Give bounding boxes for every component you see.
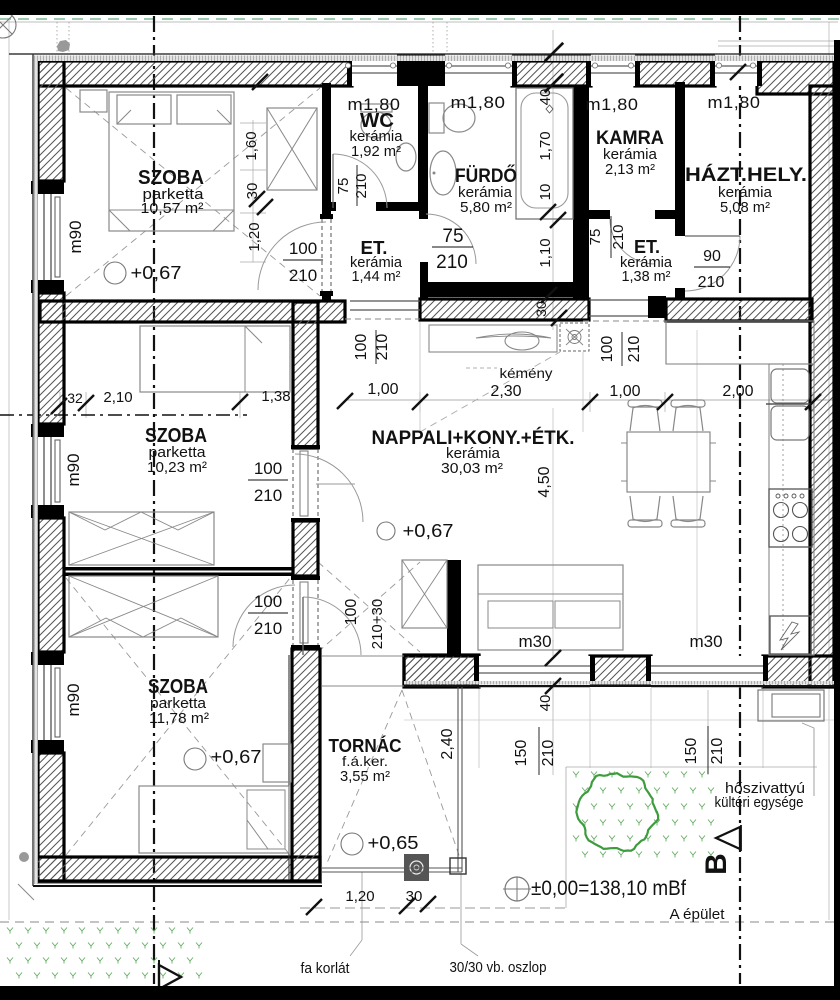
svg-text:150: 150: [683, 738, 700, 765]
svg-text:100: 100: [254, 459, 282, 478]
svg-text:+0,65: +0,65: [368, 833, 419, 853]
svg-text:210: 210: [436, 252, 468, 273]
svg-text:2,30: 2,30: [490, 383, 521, 400]
svg-text:3,55 m²: 3,55 m²: [340, 769, 390, 785]
svg-text:KAMRA: KAMRA: [596, 128, 664, 149]
svg-text:210: 210: [289, 266, 317, 285]
svg-text:30/30 vb. oszlop: 30/30 vb. oszlop: [450, 960, 547, 976]
svg-text:210: 210: [374, 334, 391, 361]
svg-text:210: 210: [540, 740, 557, 767]
svg-text:B: B: [700, 853, 733, 875]
svg-text:kerámia: kerámia: [458, 185, 513, 201]
svg-text:10,57 m²: 10,57 m²: [141, 200, 204, 217]
svg-text:210+30: 210+30: [369, 599, 386, 649]
svg-text:m1,80: m1,80: [708, 93, 761, 112]
svg-text:210: 210: [709, 738, 726, 765]
svg-text:75: 75: [587, 229, 604, 246]
svg-text:A épület: A épület: [670, 907, 725, 923]
svg-text:75: 75: [442, 226, 463, 247]
svg-text:m30: m30: [518, 632, 551, 651]
svg-text:FÜRDŐ: FÜRDŐ: [455, 165, 517, 187]
svg-text:1,00: 1,00: [367, 381, 398, 398]
svg-text:m90: m90: [66, 220, 85, 253]
svg-text:30,03 m²: 30,03 m²: [441, 461, 503, 477]
svg-text:210: 210: [626, 336, 643, 363]
svg-text:2,13 m²: 2,13 m²: [605, 162, 655, 178]
svg-text:+0,67: +0,67: [131, 263, 182, 283]
svg-text:±0,00=138,10 mBf: ±0,00=138,10 mBf: [531, 877, 686, 900]
svg-text:210: 210: [610, 224, 627, 249]
svg-text:1,10: 1,10: [537, 238, 554, 267]
svg-text:kerámia: kerámia: [446, 446, 501, 462]
svg-text:30: 30: [406, 888, 423, 905]
svg-text:210: 210: [254, 486, 282, 505]
svg-text:100: 100: [599, 336, 616, 363]
svg-text:2,00: 2,00: [722, 383, 753, 400]
svg-text:40: 40: [537, 695, 554, 712]
svg-text:75: 75: [335, 178, 352, 195]
svg-text:5,80 m²: 5,80 m²: [460, 200, 512, 216]
svg-text:m30: m30: [689, 632, 722, 651]
svg-text:40: 40: [537, 89, 554, 106]
svg-text:m1,80: m1,80: [586, 95, 639, 114]
svg-text:5,08 m²: 5,08 m²: [720, 200, 770, 216]
svg-text:32: 32: [67, 390, 83, 406]
svg-text:kerámia: kerámia: [718, 185, 773, 201]
svg-text:fa korlát: fa korlát: [301, 961, 350, 977]
svg-text:f.á.ker.: f.á.ker.: [342, 753, 388, 769]
svg-text:30: 30: [244, 183, 261, 200]
svg-text:1,38 m²: 1,38 m²: [622, 269, 671, 285]
svg-text:2,10: 2,10: [103, 389, 132, 406]
svg-text:m1,80: m1,80: [451, 93, 506, 112]
svg-text:+0,67: +0,67: [403, 521, 454, 541]
svg-text:1,20: 1,20: [246, 222, 263, 251]
svg-text:1,38: 1,38: [261, 388, 290, 405]
svg-text:1,70: 1,70: [537, 131, 554, 160]
svg-text:m90: m90: [64, 683, 83, 716]
svg-text:90: 90: [703, 248, 721, 265]
svg-text:1,92 m²: 1,92 m²: [351, 144, 401, 160]
svg-text:10: 10: [537, 184, 554, 201]
svg-text:kültéri egysége: kültéri egysége: [715, 794, 804, 811]
svg-text:30: 30: [533, 301, 549, 317]
svg-text:10,23 m²: 10,23 m²: [147, 459, 207, 476]
svg-text:210: 210: [353, 173, 370, 198]
svg-text:100: 100: [343, 599, 360, 626]
svg-text:100: 100: [289, 239, 317, 258]
svg-text:HÁZT.HELY.: HÁZT.HELY.: [685, 164, 807, 186]
svg-text:100: 100: [353, 334, 370, 361]
svg-text:210: 210: [698, 274, 725, 291]
svg-text:m90: m90: [64, 453, 83, 486]
svg-text:100: 100: [254, 592, 282, 611]
svg-text:150: 150: [513, 740, 530, 767]
svg-text:kerámia: kerámia: [350, 129, 404, 145]
svg-text:1,60: 1,60: [243, 131, 260, 160]
svg-text:4,50: 4,50: [536, 466, 553, 497]
svg-text:ET.: ET.: [634, 237, 660, 257]
svg-text:210: 210: [254, 619, 282, 638]
svg-text:2,40: 2,40: [439, 728, 456, 759]
svg-text:+0,67: +0,67: [211, 747, 262, 767]
svg-text:1,00: 1,00: [609, 383, 640, 400]
svg-text:1,44 m²: 1,44 m²: [352, 269, 401, 285]
svg-text:kémény: kémény: [500, 365, 553, 381]
svg-text:11,78 m²: 11,78 m²: [149, 710, 209, 727]
svg-text:kerámia: kerámia: [603, 147, 658, 163]
svg-text:1,20: 1,20: [345, 888, 374, 905]
